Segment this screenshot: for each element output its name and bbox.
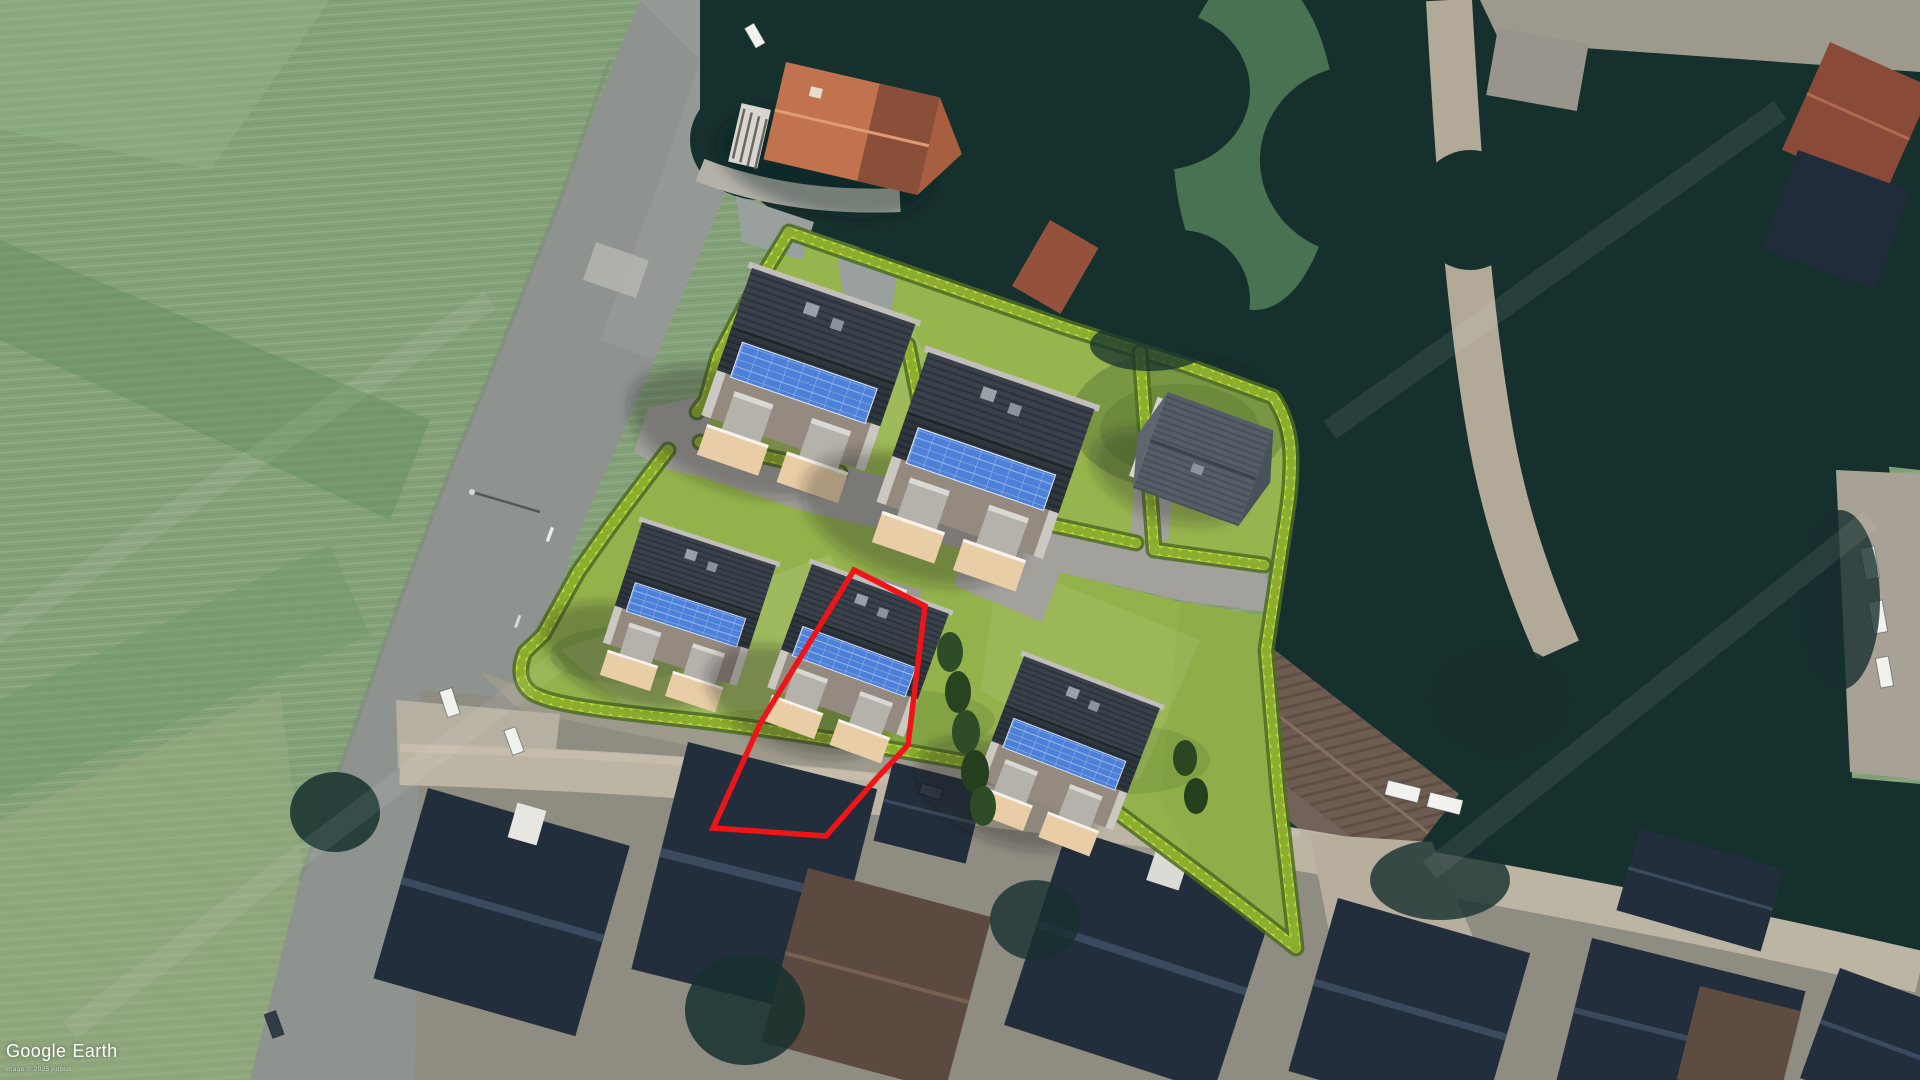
aerial-composite-map: GoogleEarth Image © 2025 Airbus (0, 0, 1920, 1080)
map-canvas (0, 0, 1920, 1080)
google-earth-watermark: GoogleEarth (6, 1042, 117, 1062)
imagery-copyright: Image © 2025 Airbus (5, 1066, 72, 1073)
brand-text: Google (6, 1041, 66, 1061)
product-text: Earth (72, 1041, 117, 1061)
